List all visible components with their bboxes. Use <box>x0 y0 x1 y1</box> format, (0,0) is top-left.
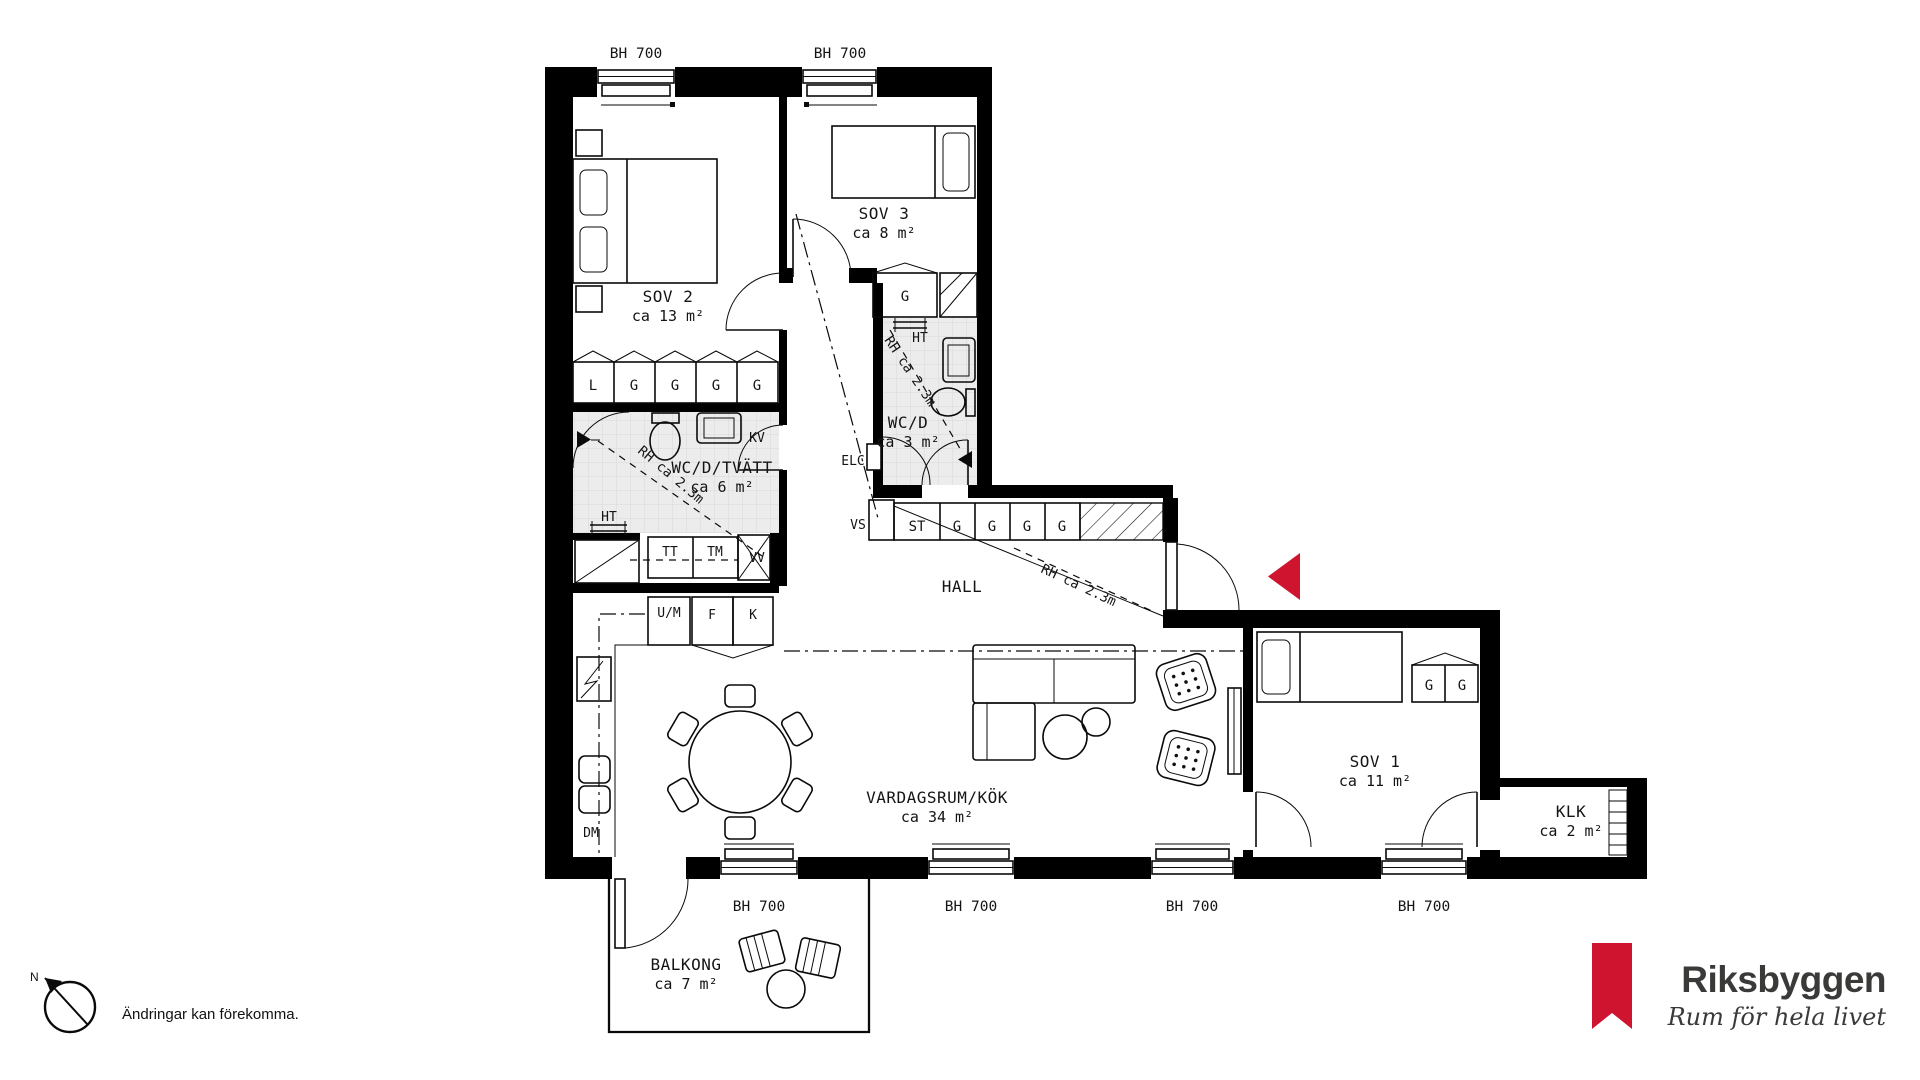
closet-label-g: G <box>630 378 638 394</box>
window-sov1 <box>1381 844 1467 879</box>
closet-label-l: L <box>589 378 597 394</box>
room-label-sov3: SOV 3 <box>859 204 910 223</box>
bed-sov1 <box>1257 632 1402 702</box>
room-area-sov3: ca 8 m² <box>852 224 915 242</box>
room-area-wcd: ca 3 m² <box>876 433 939 451</box>
riksbyggen-logo: Riksbyggen Rum för hela livet <box>1592 943 1886 1031</box>
floor-plan-page: L G G G G G ST G G G G <box>0 0 1920 1080</box>
entrance-arrow <box>1268 553 1300 600</box>
label-vs: VS <box>850 518 866 533</box>
rh-label-hall: RH ca 2.3m <box>1038 561 1118 610</box>
closet-label-g: G <box>1023 519 1031 535</box>
section-line-kitchen <box>599 614 645 868</box>
door-sov1 <box>1256 792 1311 847</box>
bh-label-bottom-2: BH 700 <box>945 899 997 915</box>
dining-set <box>666 685 814 839</box>
room-label-wcdtvatt: WC/D/TVÄTT <box>671 458 772 477</box>
window-kitchen <box>720 844 798 879</box>
door-klk <box>1422 792 1477 847</box>
window-sov2 <box>597 67 675 107</box>
label-tm: TM <box>707 545 723 560</box>
room-area-klk: ca 2 m² <box>1539 822 1602 840</box>
riksbyggen-brand-text: Riksbyggen <box>1681 959 1886 1000</box>
door-entrance <box>1166 542 1239 610</box>
room-label-wcd: WC/D <box>888 413 929 432</box>
laundry-machines: TT TM <box>630 537 738 578</box>
closet-label-g: G <box>712 378 720 394</box>
label-elc: ELC <box>841 454 864 469</box>
tv-bench <box>1228 688 1241 774</box>
vs-shaft: VS <box>850 500 894 540</box>
label-dm: DM <box>583 826 599 841</box>
label-tt: TT <box>662 545 678 560</box>
compass-n-label: N <box>30 970 39 984</box>
closet-label-st: ST <box>909 519 926 535</box>
balcony-chair-1 <box>738 929 785 972</box>
kitchen-tall-units: U/M F K <box>648 597 773 658</box>
closet-label-g: G <box>753 378 761 394</box>
bed-sov2 <box>573 130 717 312</box>
door-sov2 <box>726 273 783 330</box>
riksbyggen-tagline: Rum för hela livet <box>1667 1003 1887 1031</box>
closet-row-hall: ST G G G G <box>894 503 1163 540</box>
room-label-klk: KLK <box>1556 802 1586 821</box>
label-ht: HT <box>912 331 928 346</box>
closet-label-g: G <box>988 519 996 535</box>
door-sov3 <box>793 219 851 277</box>
room-label-sov1: SOV 1 <box>1350 752 1401 771</box>
storage: L G G G G G ST G G G G <box>573 263 1627 855</box>
closet-label-g: G <box>671 378 679 394</box>
room-area-vardagsrum: ca 34 m² <box>901 808 973 826</box>
kitchen-sink <box>579 756 610 813</box>
bh-label-bottom-1: BH 700 <box>733 899 785 915</box>
compass: N <box>30 970 95 1032</box>
coffee-table-small <box>1082 708 1110 736</box>
sofa <box>973 645 1135 760</box>
label-k: K <box>749 608 757 623</box>
room-area-sov2: ca 13 m² <box>632 307 704 325</box>
room-area-balkong: ca 7 m² <box>654 975 717 993</box>
room-area-sov1: ca 11 m² <box>1339 772 1411 790</box>
closet-label-g: G <box>901 289 909 305</box>
kitchen: U/M F K DM <box>577 597 773 857</box>
room-label-sov2: SOV 2 <box>643 287 694 306</box>
high-cabinet-hatch <box>1080 503 1163 540</box>
closet-label-g: G <box>1425 678 1433 694</box>
floor-plan-drawing: L G G G G G ST G G G G <box>0 0 1920 1080</box>
window-living-2 <box>1151 844 1234 879</box>
balcony-chair-2 <box>795 937 841 979</box>
closet-label-g: G <box>1058 519 1066 535</box>
label-um: U/M <box>657 606 681 621</box>
label-f: F <box>708 608 716 623</box>
riksbyggen-logo-mark <box>1592 943 1632 1029</box>
closet-label-g: G <box>1458 678 1466 694</box>
room-area-wcdtvatt: ca 6 m² <box>690 478 753 496</box>
bh-label-top-1: BH 700 <box>610 46 662 62</box>
klk-shelving <box>1609 790 1627 855</box>
armchair-1 <box>1154 651 1218 713</box>
door-balcony <box>615 879 688 948</box>
bed-sov3 <box>832 126 975 198</box>
section-line-upper-hall <box>796 214 879 522</box>
room-label-hall: HALL <box>942 577 983 596</box>
armchair-2 <box>1155 728 1217 787</box>
room-label-balkong: BALKONG <box>651 955 722 974</box>
label-ht: HT <box>601 510 617 525</box>
disclaimer-text: Ändringar kan förekomma. <box>122 1006 299 1023</box>
coffee-table-large <box>1043 715 1087 759</box>
bh-label-bottom-3: BH 700 <box>1166 899 1218 915</box>
room-label-vardagsrum: VARDAGSRUM/KÖK <box>866 788 1008 807</box>
closet-sov3: G <box>873 263 977 317</box>
dining-table <box>689 711 791 813</box>
vv-shaft: VV <box>738 535 770 580</box>
bh-label-top-2: BH 700 <box>814 46 866 62</box>
kitchen-counter-edge <box>615 645 648 857</box>
label-vv: VV <box>749 551 765 566</box>
electric-panel <box>577 657 611 701</box>
window-sov3 <box>802 67 877 107</box>
wardrobe-row-sov2: L G G G G <box>573 351 778 403</box>
wardrobe-sov1: G G <box>1412 653 1478 702</box>
balcony-table <box>767 970 805 1008</box>
bh-label-bottom-4: BH 700 <box>1398 899 1450 915</box>
vent-shaft <box>575 540 639 583</box>
window-living-1 <box>928 844 1014 879</box>
label-kv: KV <box>749 431 765 446</box>
elc-cabinet: ELC <box>841 444 881 470</box>
